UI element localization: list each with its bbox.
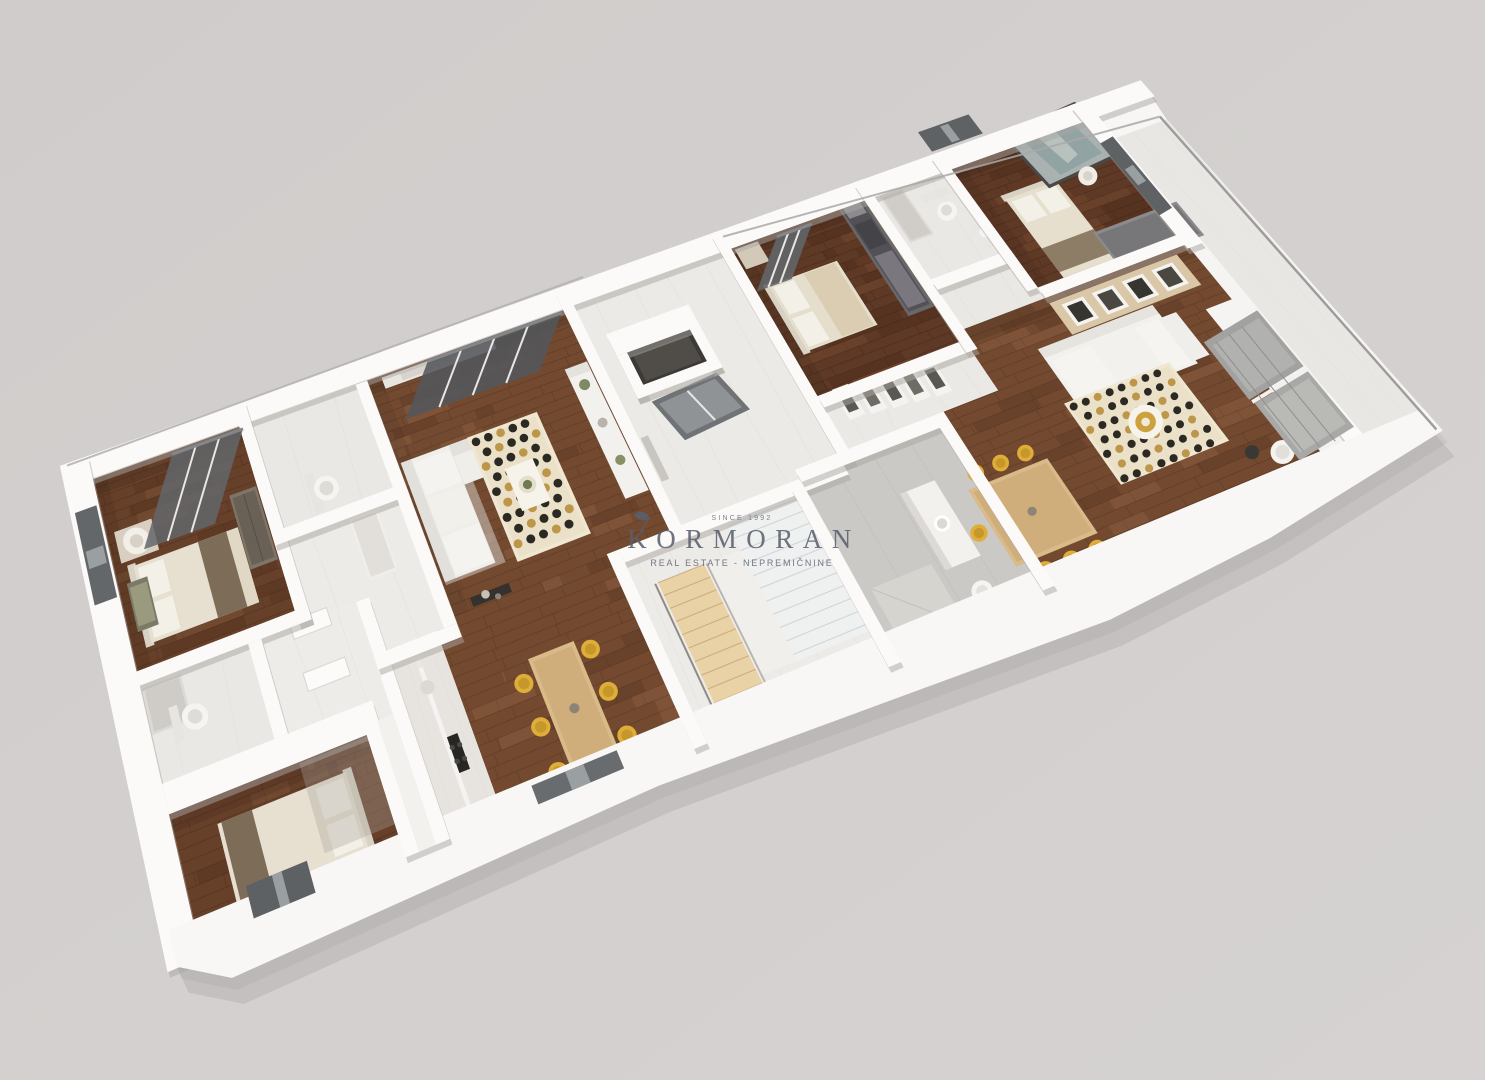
svg-text:REAL ESTATE - NEPREMIČNINE: REAL ESTATE - NEPREMIČNINE [650, 558, 833, 568]
svg-text:KORMORAN: KORMORAN [627, 524, 861, 554]
svg-text:SINCE 1992: SINCE 1992 [712, 515, 773, 522]
